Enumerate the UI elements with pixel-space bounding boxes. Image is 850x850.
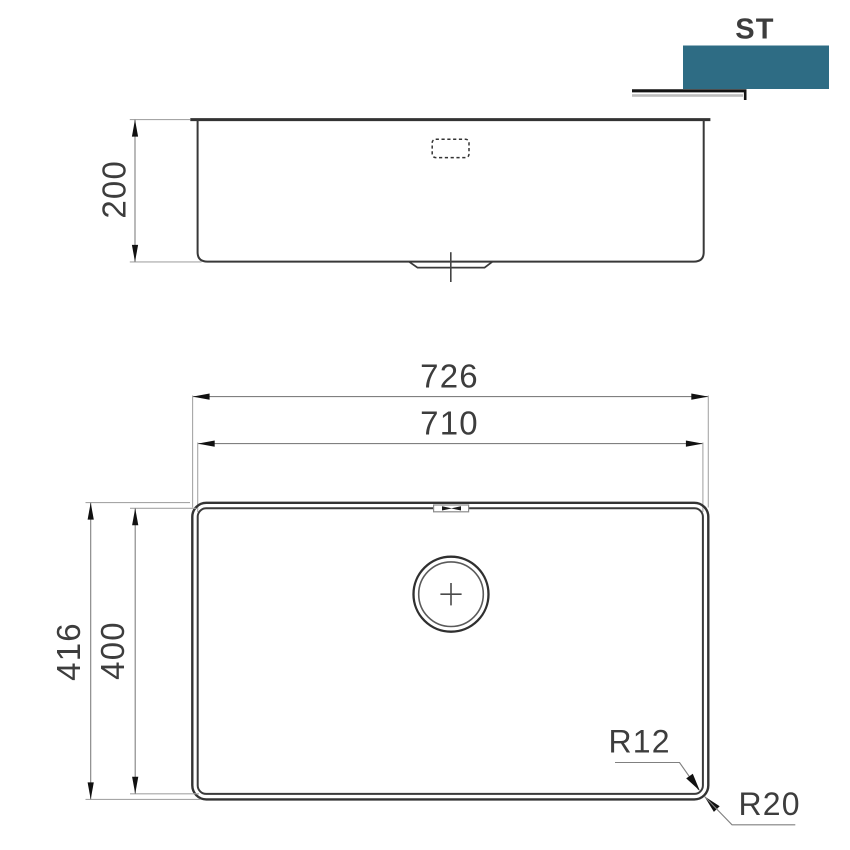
svg-text:416: 416 xyxy=(50,622,87,681)
svg-text:400: 400 xyxy=(94,621,131,680)
svg-text:R12: R12 xyxy=(609,724,671,760)
svg-text:200: 200 xyxy=(96,160,133,219)
svg-text:R20: R20 xyxy=(739,786,801,822)
svg-text:726: 726 xyxy=(420,357,479,394)
svg-text:ST: ST xyxy=(735,14,774,46)
svg-text:710: 710 xyxy=(420,404,479,441)
